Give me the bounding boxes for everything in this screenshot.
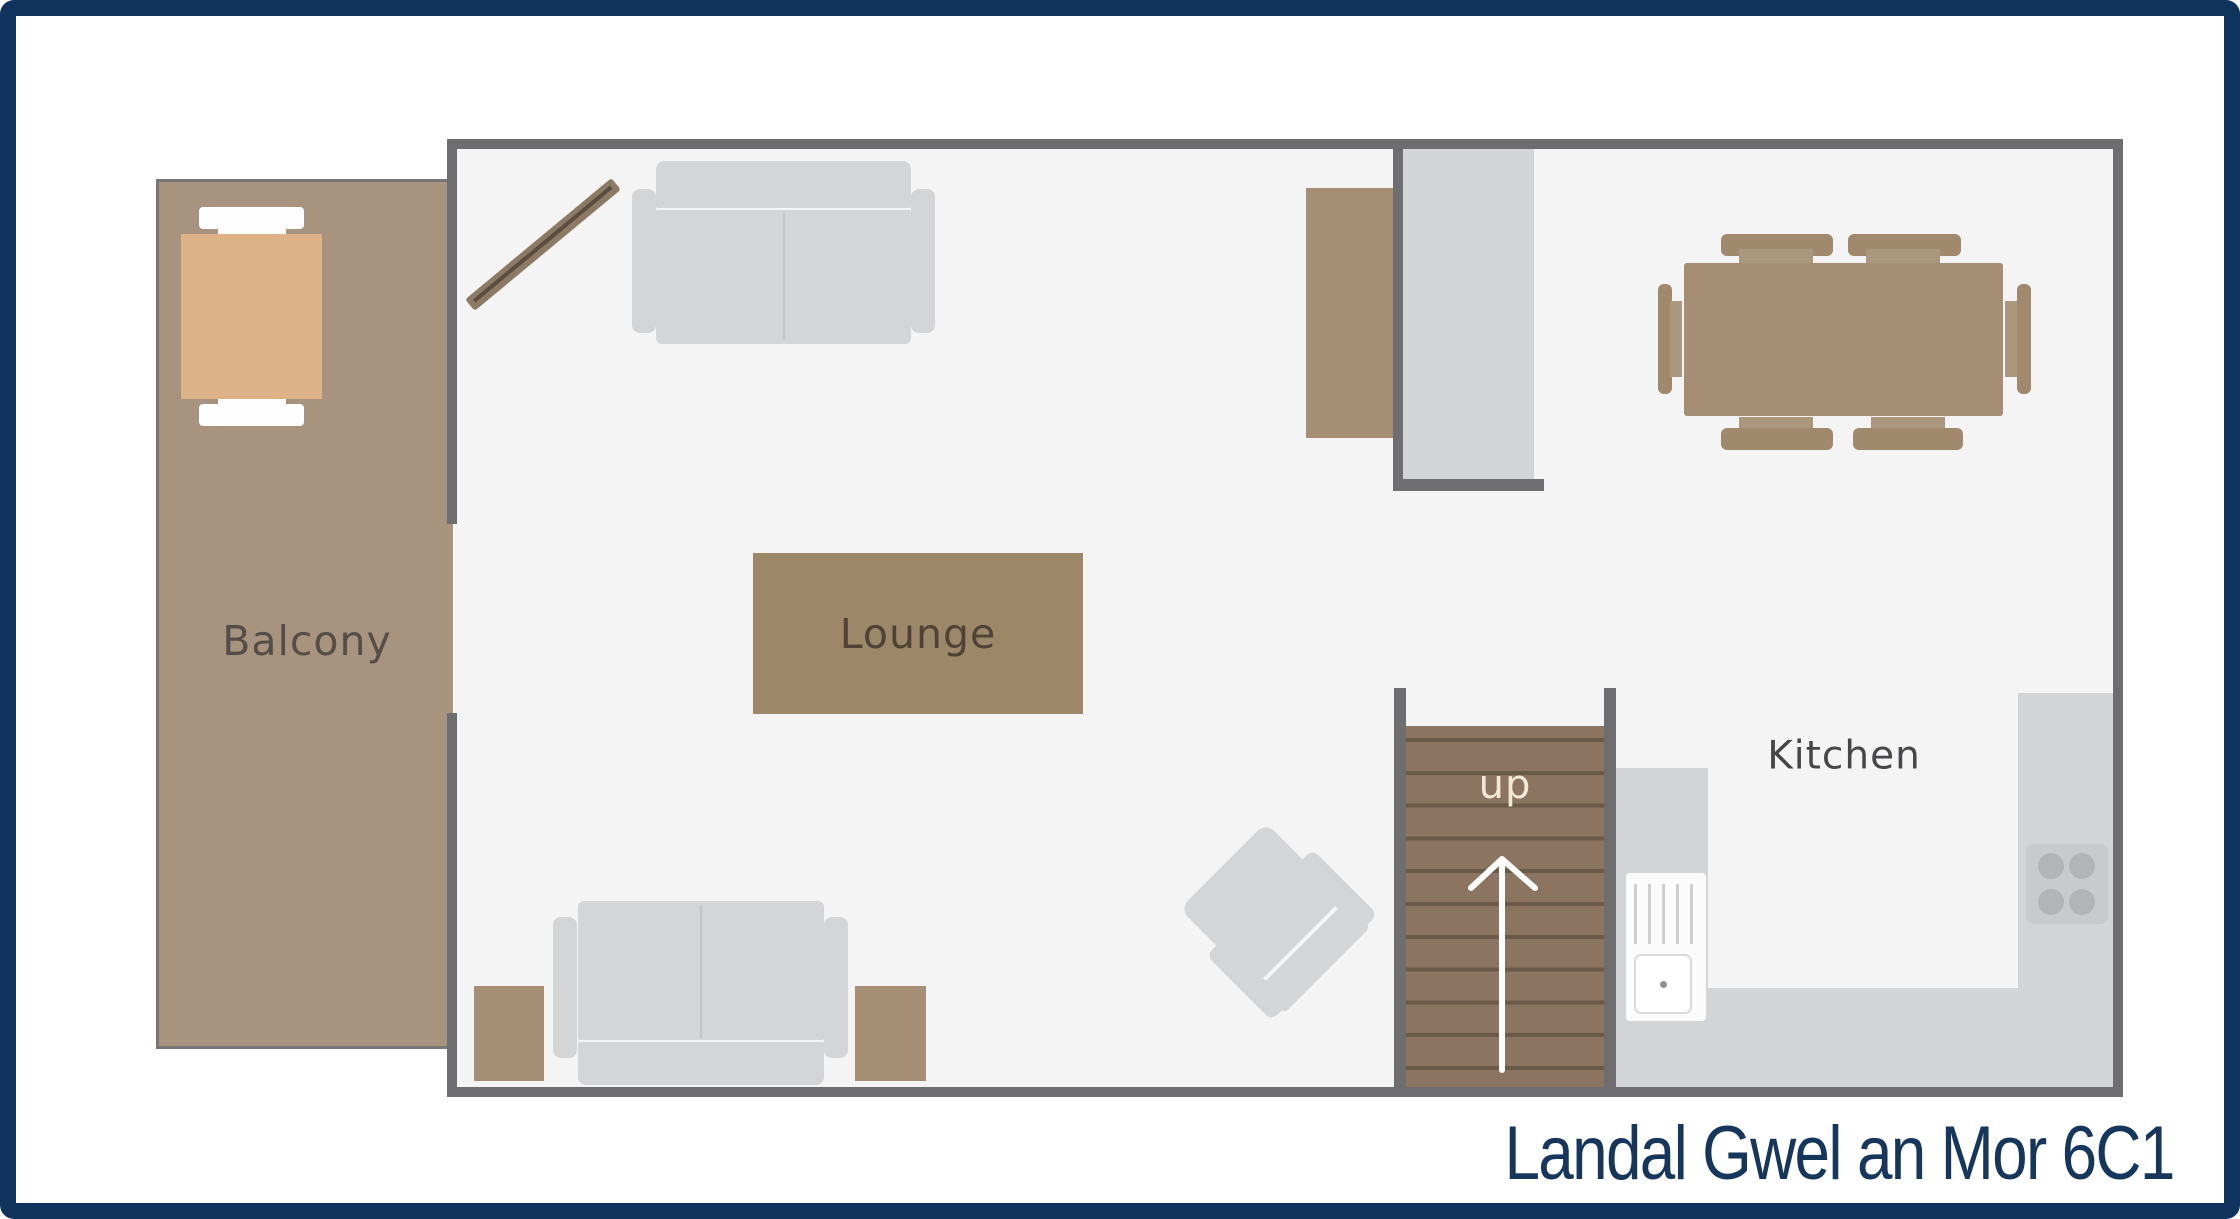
interior-wall	[1393, 479, 1544, 491]
drainer-line	[1676, 884, 1679, 944]
dining-chair-seat	[1670, 301, 1682, 377]
sofa-cushion-divider	[700, 905, 702, 1038]
sofa-seat	[656, 210, 911, 344]
floor-plan-image: Balcony Lounge	[0, 0, 2240, 1219]
staircase-icon: up	[1406, 726, 1604, 1087]
balcony-area: Balcony	[156, 179, 453, 1049]
balcony-chair-icon	[199, 404, 304, 426]
hob-ring	[2069, 889, 2095, 915]
up-arrow-icon	[1406, 726, 1604, 1087]
hob-ring	[2038, 853, 2064, 879]
interior-wall	[1393, 149, 1403, 489]
sofa-backrest	[578, 1042, 824, 1085]
balcony-door-opening	[447, 524, 457, 713]
dining-chair-icon	[2017, 284, 2031, 394]
stair-wall	[1394, 688, 1406, 1087]
sideboard-icon	[1306, 188, 1396, 438]
hob-ring	[2069, 853, 2095, 879]
side-table-icon	[474, 986, 544, 1081]
lounge-rug: Lounge	[753, 553, 1083, 714]
drainer-line	[1634, 884, 1637, 944]
hob-ring	[2038, 889, 2064, 915]
balcony-table-icon	[181, 234, 322, 399]
kitchen-label: Kitchen	[1767, 734, 1921, 779]
drainer-line	[1690, 884, 1693, 944]
sink-basin	[1634, 954, 1692, 1014]
sofa-arm	[632, 189, 656, 333]
drainer-line	[1648, 884, 1651, 944]
sofa-cushion-divider	[783, 212, 785, 340]
sofa-bottom	[553, 901, 848, 1085]
stair-void-area	[1403, 149, 1534, 479]
sink-icon	[1626, 873, 1706, 1021]
dining-chair-icon	[1721, 428, 1833, 450]
drainer-line	[1662, 884, 1665, 944]
dining-chair-seat	[2005, 301, 2017, 377]
balcony-chair-icon	[199, 207, 304, 229]
sofa-arm	[911, 189, 935, 333]
sofa-arm	[824, 917, 848, 1058]
dining-table-icon	[1684, 263, 2003, 416]
hob-icon	[2026, 844, 2108, 924]
balcony-label: Balcony	[222, 617, 392, 665]
sofa-top	[632, 161, 935, 344]
sofa-arm	[553, 917, 577, 1058]
dining-chair-icon	[1853, 428, 1963, 450]
side-table-icon	[855, 986, 926, 1081]
sofa-backrest	[656, 161, 911, 208]
sink-drain	[1660, 981, 1667, 988]
stair-wall	[1604, 688, 1616, 1087]
plan-title: Landal Gwel an Mor 6C1	[1505, 1114, 2174, 1194]
lounge-label: Lounge	[840, 610, 996, 658]
sofa-seat	[578, 901, 824, 1040]
